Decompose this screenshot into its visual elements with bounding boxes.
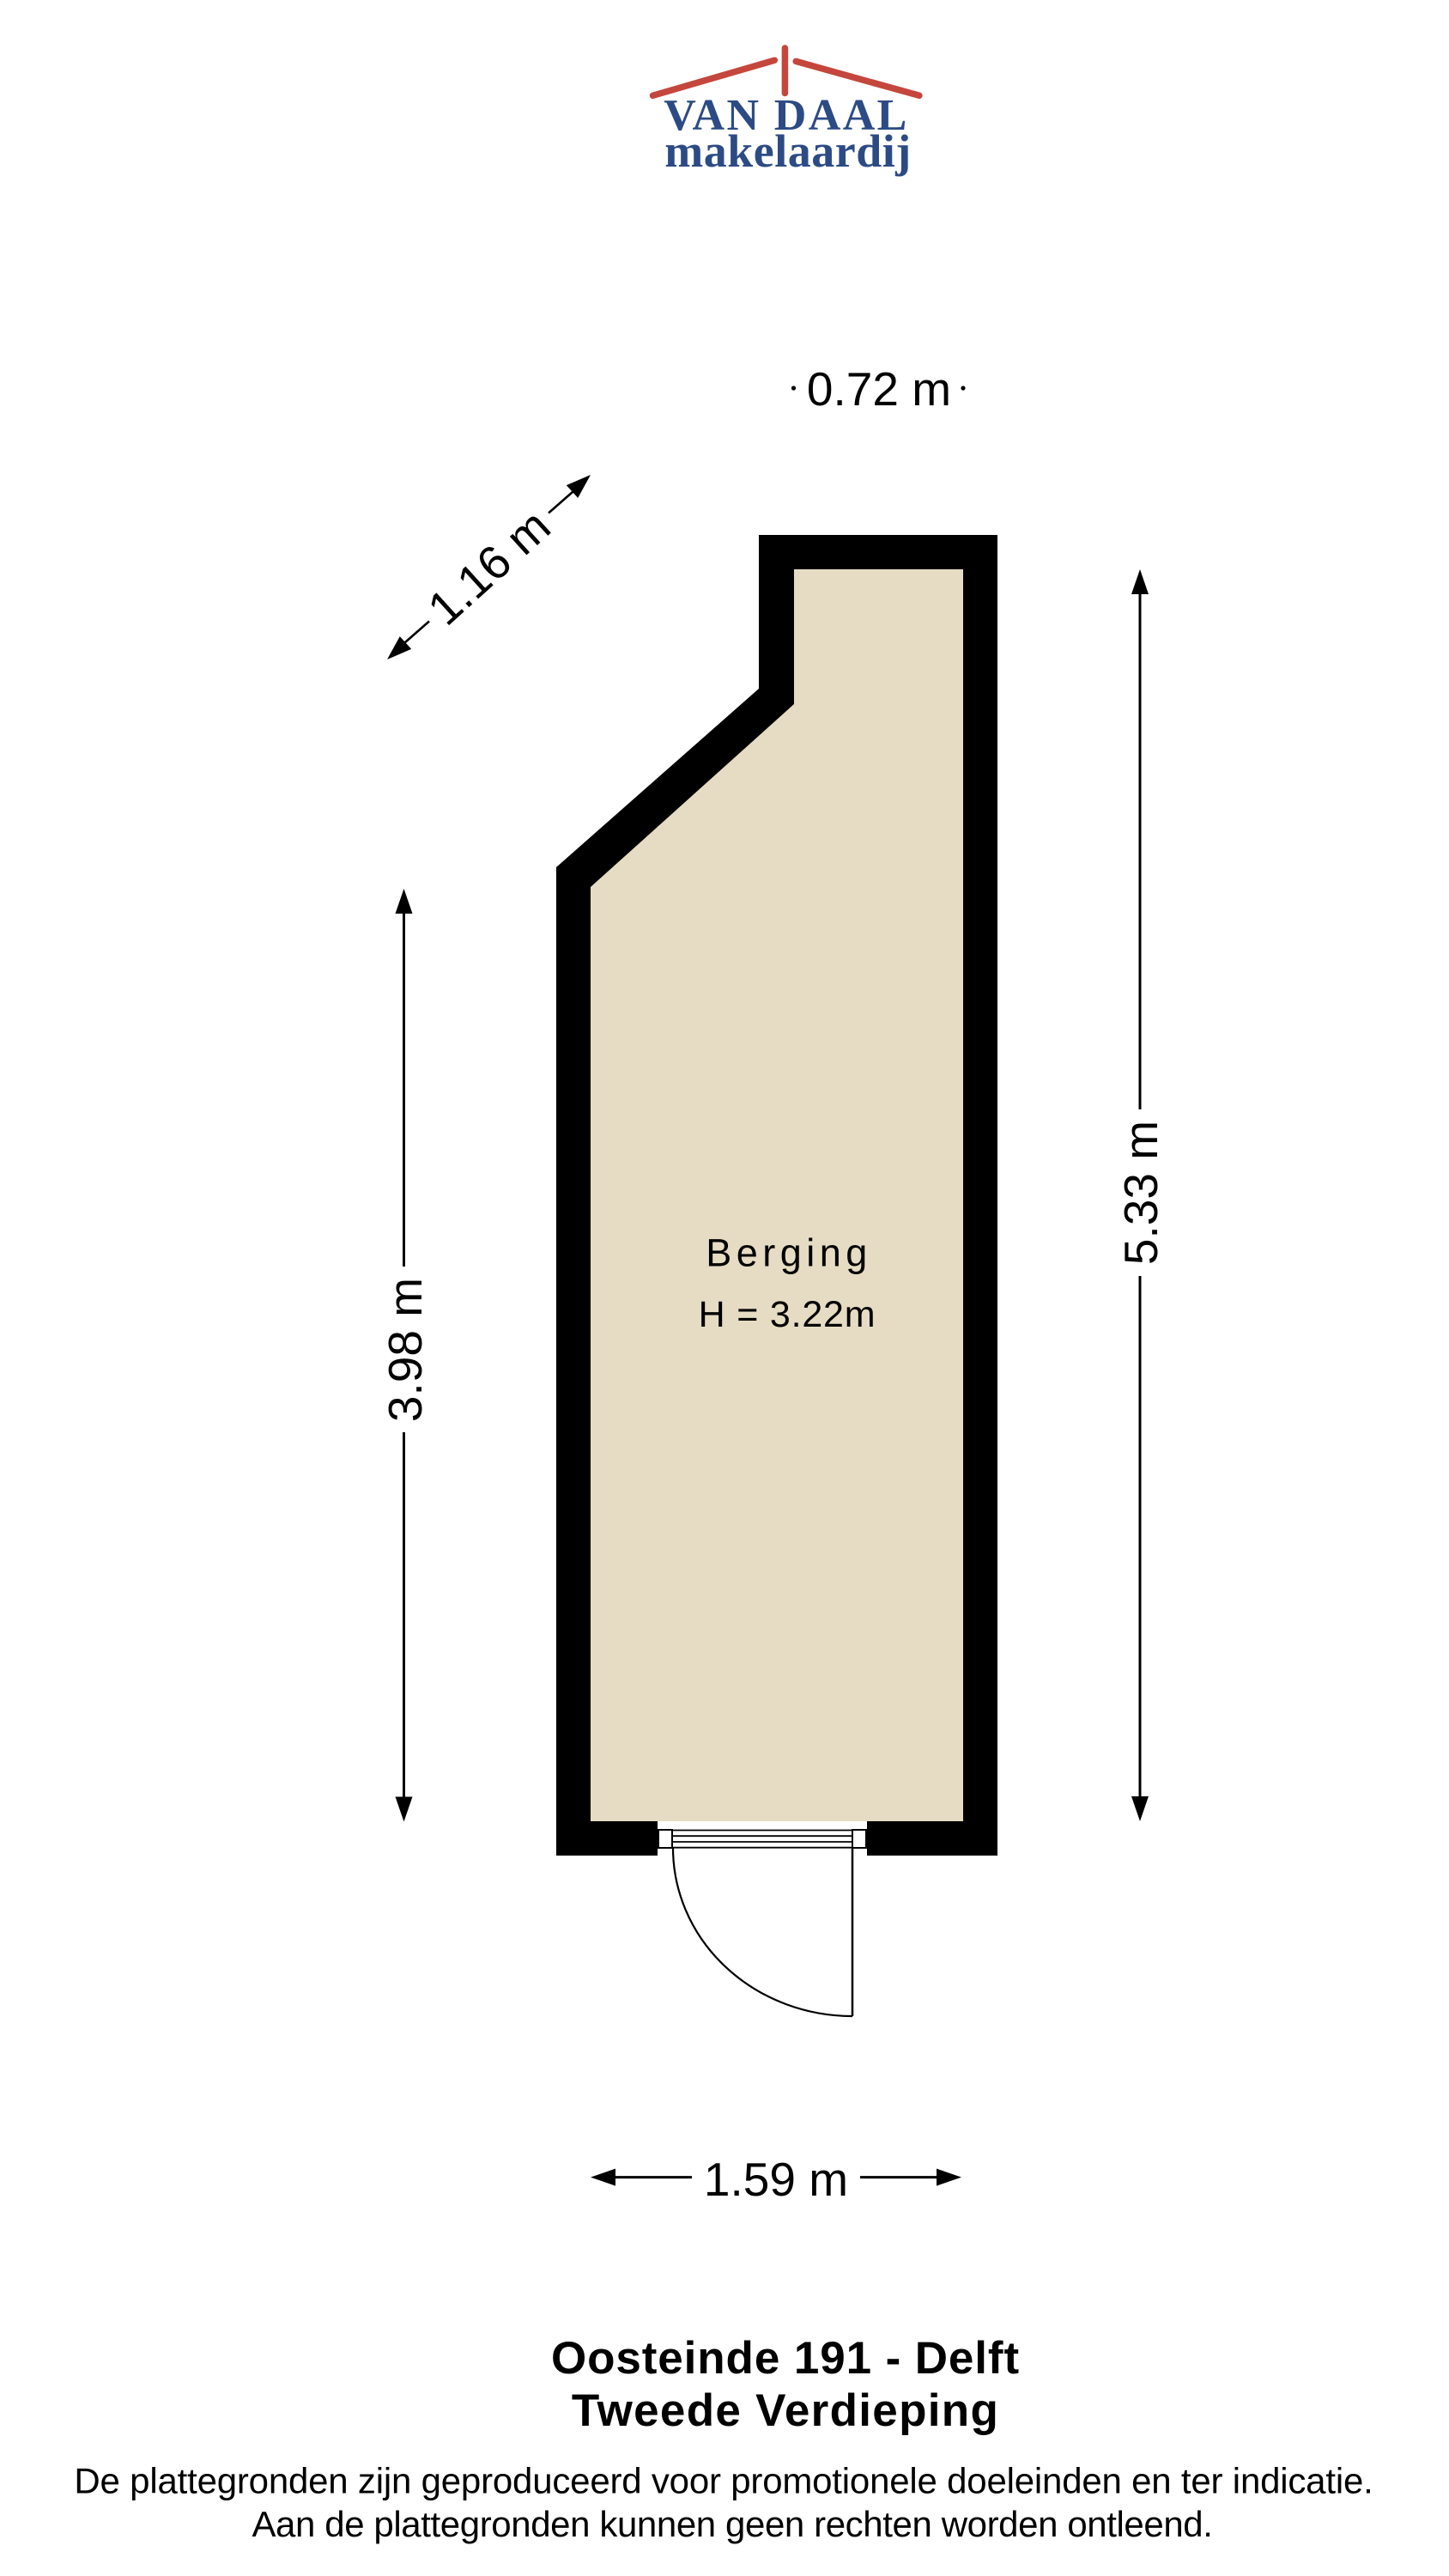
svg-text:Tweede Verdieping: Tweede Verdieping [572,2385,999,2436]
svg-text:1.16 m: 1.16 m [417,499,560,635]
svg-text:Oosteinde 191 - Delft: Oosteinde 191 - Delft [551,2333,1020,2384]
svg-text:Berging: Berging [706,1231,872,1275]
svg-text:makelaardij: makelaardij [664,125,911,177]
svg-text:5.33 m: 5.33 m [1114,1121,1167,1265]
svg-text:H = 3.22m: H = 3.22m [699,1294,876,1335]
svg-text:0.72 m: 0.72 m [807,362,951,416]
svg-text:Aan de plattegronden kunnen ge: Aan de plattegronden kunnen geen rechten… [252,2504,1212,2544]
svg-text:De plattegronden zijn geproduc: De plattegronden zijn geproduceerd voor … [74,2461,1373,2501]
svg-text:3.98 m: 3.98 m [379,1278,432,1422]
svg-text:1.59 m: 1.59 m [704,2153,848,2206]
